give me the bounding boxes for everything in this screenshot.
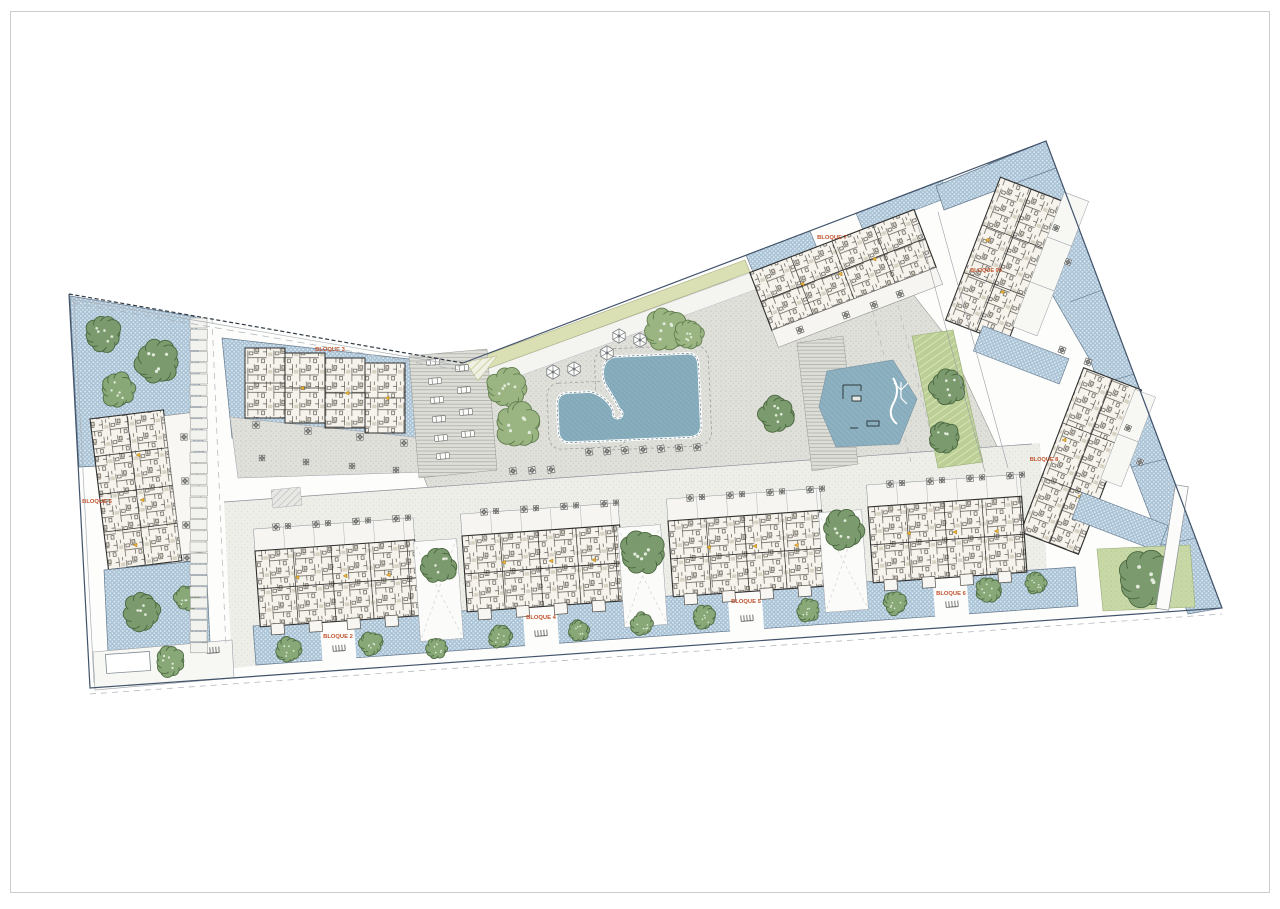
svg-text:BLOQUE 09: BLOQUE 09 (970, 268, 1002, 274)
svg-text:BLOQUE 8: BLOQUE 8 (1030, 457, 1059, 463)
svg-text:BLOQUE 7: BLOQUE 7 (817, 235, 847, 241)
svg-text:BLOQUE 4: BLOQUE 4 (526, 615, 556, 621)
svg-text:BLOQUE 3: BLOQUE 3 (315, 347, 345, 353)
svg-text:BLOQUE 2: BLOQUE 2 (323, 634, 353, 640)
svg-text:BLOQUE 5: BLOQUE 5 (731, 599, 761, 605)
svg-text:BLOQUE 5: BLOQUE 5 (82, 499, 112, 505)
svg-text:BLOQUE 6: BLOQUE 6 (936, 591, 966, 597)
